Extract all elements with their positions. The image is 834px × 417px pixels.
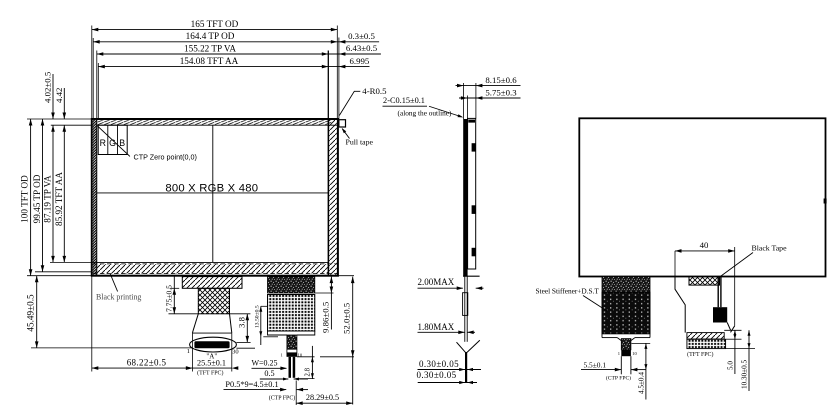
- svg-text:100 TFT OD: 100 TFT OD: [20, 175, 30, 223]
- svg-text:13.50±0.5: 13.50±0.5: [254, 305, 260, 328]
- svg-text:Black printing: Black printing: [96, 293, 141, 302]
- svg-text:1: 1: [618, 351, 620, 356]
- svg-text:4.42: 4.42: [54, 88, 64, 103]
- svg-text:0.30±0.05: 0.30±0.05: [419, 359, 459, 369]
- svg-text:2-C0.15±0.1: 2-C0.15±0.1: [383, 96, 425, 105]
- svg-text:9.86±0.5: 9.86±0.5: [320, 301, 330, 333]
- svg-text:85.92 TFT AA: 85.92 TFT AA: [54, 172, 64, 226]
- svg-text:164.4 TP OD: 164.4 TP OD: [186, 31, 235, 41]
- svg-text:154.08 TFT AA: 154.08 TFT AA: [180, 56, 239, 66]
- svg-text:5.5±0.1: 5.5±0.1: [584, 361, 607, 370]
- svg-text:2.00MAX: 2.00MAX: [418, 277, 455, 287]
- svg-text:(CTP FPC): (CTP FPC): [606, 375, 631, 382]
- svg-text:6.995: 6.995: [350, 56, 370, 66]
- svg-text:0.5: 0.5: [264, 369, 274, 378]
- svg-text:40: 40: [700, 240, 709, 250]
- svg-text:0.30±0.05: 0.30±0.05: [416, 370, 456, 380]
- svg-text:800 X RGB X 480: 800 X RGB X 480: [165, 182, 258, 194]
- svg-text:R: R: [100, 138, 106, 148]
- svg-text:99.45 TP OD: 99.45 TP OD: [32, 174, 42, 223]
- svg-text:Black Tape: Black Tape: [752, 244, 788, 253]
- svg-text:CTP Zero point(0,0): CTP Zero point(0,0): [134, 153, 197, 162]
- svg-text:52.0±0.5: 52.0±0.5: [342, 302, 352, 334]
- svg-text:B: B: [119, 138, 125, 148]
- svg-text:0.3±0.5: 0.3±0.5: [348, 31, 375, 41]
- svg-text:(along the outline): (along the outline): [398, 109, 452, 118]
- svg-text:W=0.25: W=0.25: [251, 358, 277, 367]
- svg-text:(TFT FPC): (TFT FPC): [687, 351, 713, 358]
- svg-text:3.8: 3.8: [237, 316, 247, 328]
- svg-text:4-R0.5: 4-R0.5: [362, 86, 387, 96]
- svg-text:4.02±0.5: 4.02±0.5: [43, 71, 53, 103]
- svg-text:165 TFT OD: 165 TFT OD: [191, 19, 239, 29]
- svg-text:155.22 TP VA: 155.22 TP VA: [184, 43, 236, 53]
- svg-text:(TFT FPC): (TFT FPC): [197, 370, 223, 377]
- svg-text:4.5±0.4: 4.5±0.4: [637, 372, 645, 394]
- svg-text:Steel Stiffener+D.S.T: Steel Stiffener+D.S.T: [536, 286, 600, 295]
- svg-text:5.0: 5.0: [727, 361, 735, 370]
- svg-text:30: 30: [232, 348, 239, 355]
- svg-text:7.75±0.5: 7.75±0.5: [165, 285, 174, 312]
- svg-text:(CTP FPC): (CTP FPC): [269, 394, 295, 401]
- svg-text:1.80MAX: 1.80MAX: [418, 322, 455, 332]
- svg-text:25.5±0.1: 25.5±0.1: [197, 358, 226, 367]
- svg-text:68.22±0.5: 68.22±0.5: [127, 357, 167, 367]
- svg-text:6.43±0.5: 6.43±0.5: [346, 43, 378, 53]
- svg-text:45.49±0.5: 45.49±0.5: [26, 294, 36, 332]
- svg-text:28.29±0.5: 28.29±0.5: [306, 393, 339, 402]
- svg-text:87.19 TP VA: 87.19 TP VA: [43, 175, 53, 223]
- svg-text:5.75±0.3: 5.75±0.3: [485, 88, 517, 98]
- svg-text:1: 1: [281, 353, 283, 358]
- svg-text:10: 10: [632, 351, 637, 356]
- svg-text:10.30±0.5: 10.30±0.5: [741, 359, 749, 389]
- svg-text:1: 1: [187, 348, 190, 355]
- svg-text:8.15±0.6: 8.15±0.6: [485, 75, 517, 85]
- svg-text:Pull tape: Pull tape: [346, 138, 374, 147]
- svg-text:P0.5*9=4.5±0.1: P0.5*9=4.5±0.1: [225, 380, 278, 389]
- svg-text:2.8: 2.8: [304, 367, 311, 376]
